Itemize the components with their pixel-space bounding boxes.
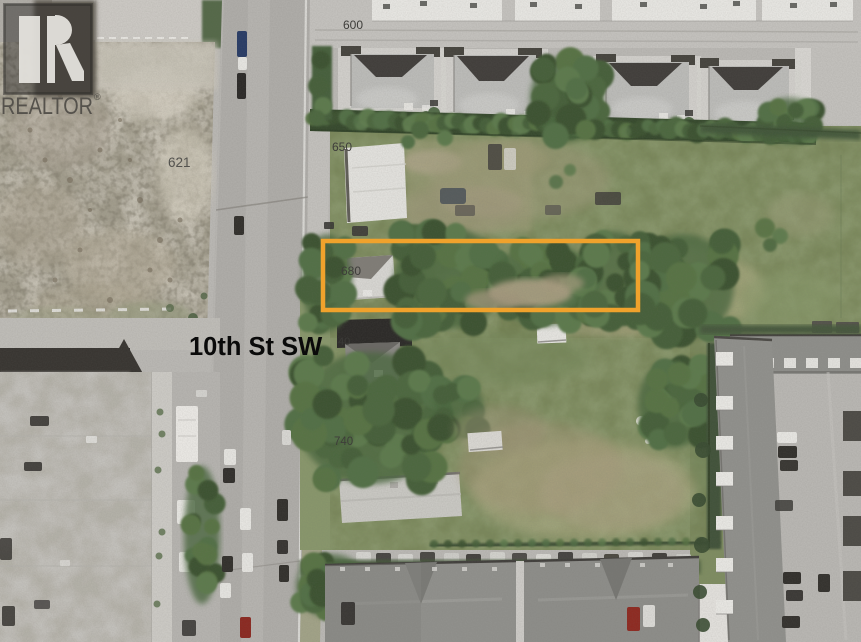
svg-text:740: 740 — [334, 436, 353, 448]
svg-text:680: 680 — [341, 264, 361, 278]
svg-text:650: 650 — [332, 140, 352, 154]
svg-text:621: 621 — [168, 155, 191, 170]
svg-text:REALTOR: REALTOR — [1, 93, 93, 120]
svg-text:40: 40 — [338, 336, 350, 348]
svg-text:10th St SW: 10th St SW — [189, 333, 323, 361]
svg-text:®: ® — [94, 92, 101, 102]
svg-text:600: 600 — [343, 18, 363, 32]
